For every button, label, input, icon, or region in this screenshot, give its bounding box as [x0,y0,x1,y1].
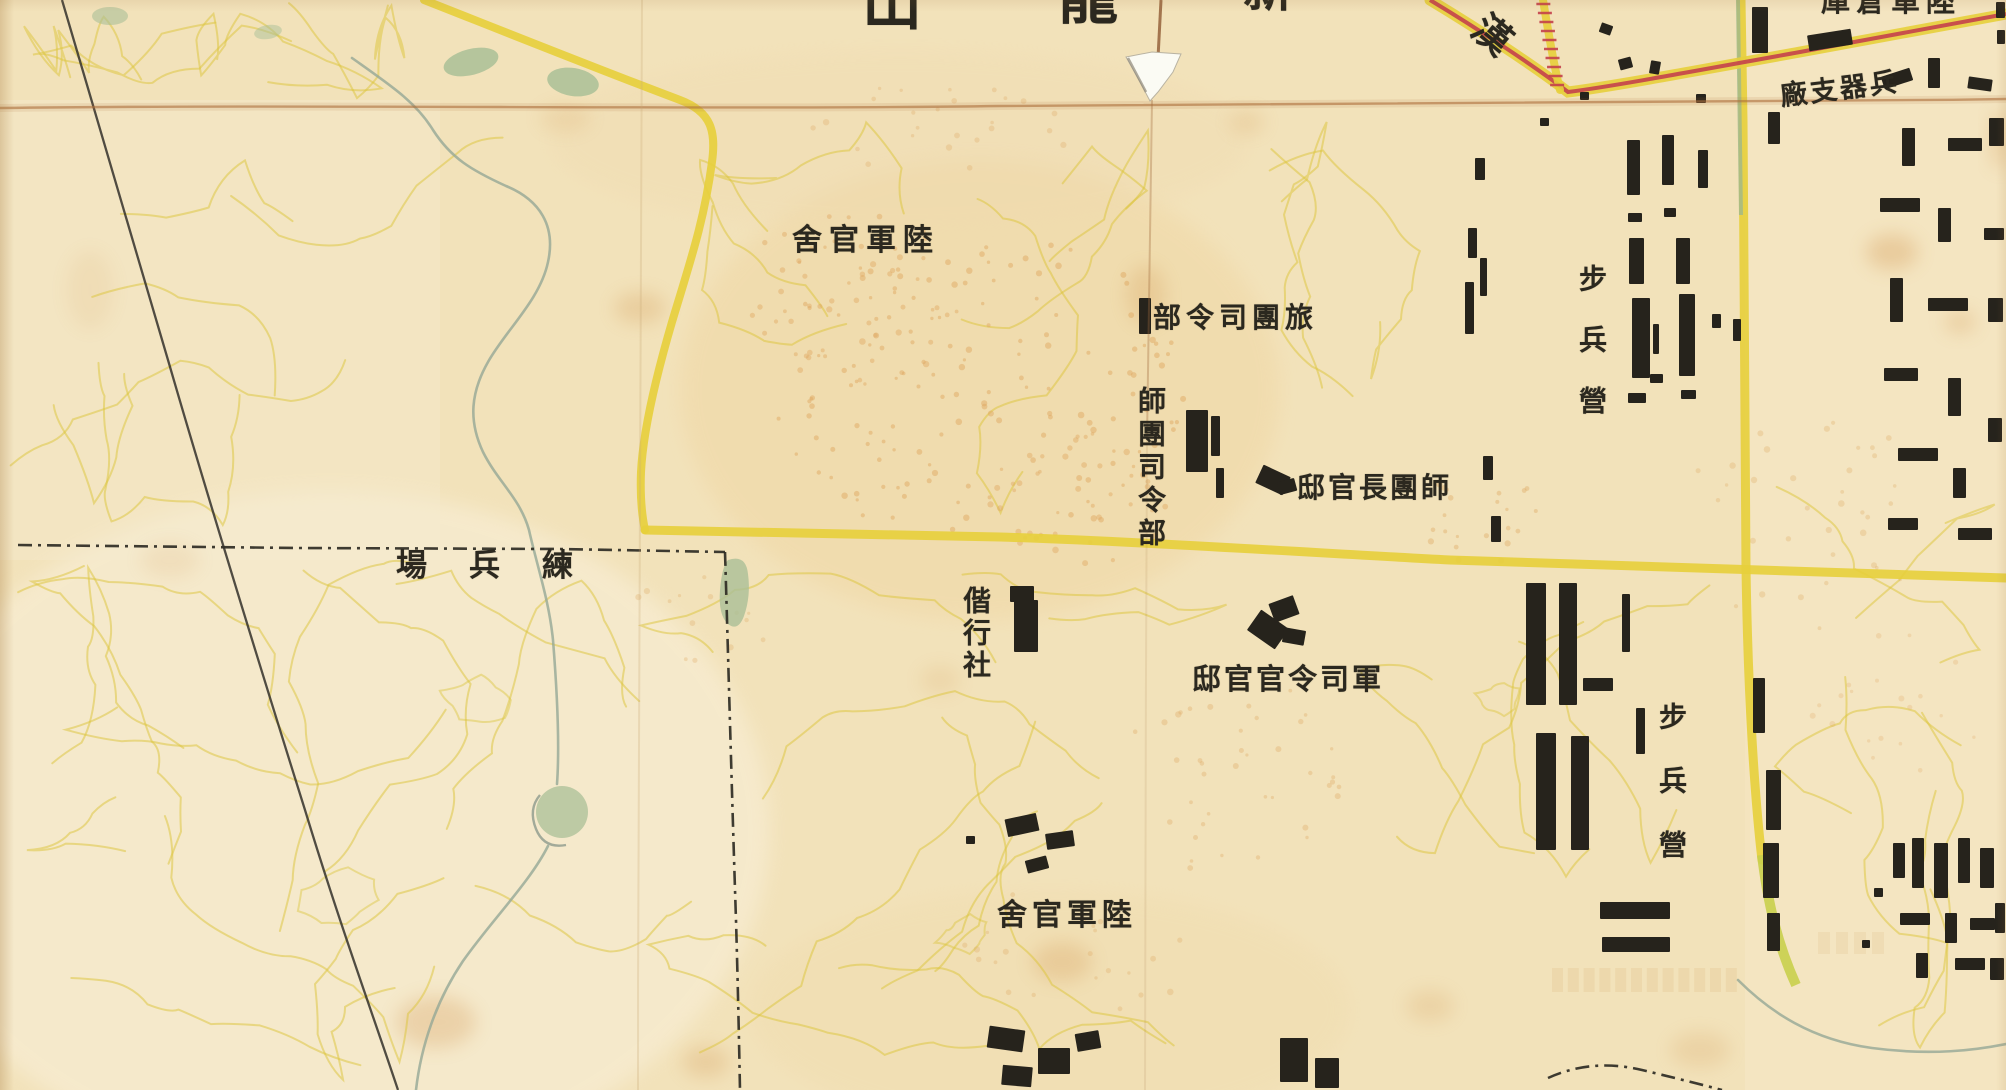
building [1475,158,1485,180]
label-infantry-barracks-north: 步兵營 [1577,264,1605,447]
building [1890,278,1903,322]
building [1653,324,1659,354]
label-army-officers-residence-north: 舍官軍陸 [792,226,940,256]
building [1955,958,1985,970]
building [1618,57,1633,71]
building [1980,848,1994,888]
building [1752,7,1768,53]
building [1632,298,1650,378]
building [1627,140,1640,195]
building [1559,583,1577,705]
building [1988,298,2003,322]
building [1010,586,1034,602]
building [1862,940,1870,948]
building [1953,468,1966,498]
building [1622,594,1630,652]
building [1681,390,1696,399]
building [1996,2,2005,18]
building [1945,913,1957,943]
building [1958,838,1970,883]
building [1491,516,1501,542]
pond [536,786,588,838]
building [1315,1058,1339,1088]
label-army-warehouse-partial: 庫倉軍陸 [1821,0,1961,16]
map-title-partial-yama: 山 [862,0,922,34]
building [1767,913,1780,951]
building [1753,678,1765,733]
building [1948,378,1961,416]
building [1583,678,1613,691]
building [1766,770,1781,830]
building [1216,468,1224,498]
building [1916,953,1928,978]
building [1898,448,1938,461]
building [1948,138,1982,151]
building [1958,528,1992,540]
building [1970,918,1995,930]
vertical-fold-crease-center [1158,0,1161,58]
building [1768,112,1780,144]
building [1928,298,1968,311]
building [1465,282,1474,334]
building [1938,208,1951,242]
label-infantry-barracks-south: 步兵營 [1657,702,1685,894]
building [1628,393,1646,403]
building [1988,418,2002,442]
building [1211,416,1220,456]
building [1280,1038,1308,1082]
building [1014,600,1038,652]
building [1602,937,1670,952]
building [1997,30,2005,44]
building [1038,1048,1070,1074]
building [1664,208,1676,217]
building [1733,319,1741,341]
building [1984,228,2004,240]
building [1526,583,1546,705]
building [1636,708,1645,754]
map-title-partial-ryu: 龍 [1058,0,1118,28]
building [1763,843,1779,898]
label-army-officers-residence-south: 舍官軍陸 [997,901,1137,931]
building [1025,855,1050,873]
building [1884,368,1918,381]
building [1629,238,1644,284]
building [1989,118,2004,146]
building [1902,128,1915,166]
building [1679,294,1695,376]
building [1712,314,1721,328]
building [1880,198,1920,212]
building [1888,518,1918,530]
label-parade-ground: 場兵練 [396,551,615,582]
building [1483,456,1493,480]
building [1480,258,1487,296]
building [1650,374,1663,383]
map-title-partial-shin: 新 [1243,0,1293,14]
building [1662,135,1674,185]
building [1934,843,1948,898]
building [1004,813,1039,837]
building [1995,903,2005,933]
label-kaikosha: 偕行社 [961,586,989,682]
building [1001,1065,1033,1088]
building [1599,22,1614,36]
building [1912,838,1924,888]
building [1571,736,1589,850]
building [1928,58,1940,88]
building [1536,733,1556,850]
label-division-commander-residence: 邸官長團師 [1297,474,1452,502]
building [1874,888,1883,897]
building [1600,902,1670,919]
vegetation-boundary-corner [720,559,749,627]
label-division-headquarters: 師團司令部 [1136,386,1164,551]
building [1990,958,2004,980]
building [1676,238,1690,284]
label-brigade-headquarters: 部令司團旅 [1153,304,1318,332]
building [1045,830,1075,850]
building [1698,150,1708,188]
building [1540,118,1549,126]
label-army-commander-residence: 邸官官令司軍 [1192,665,1384,694]
building [1893,843,1905,878]
building [1186,410,1208,472]
building [1900,913,1930,925]
map-canvas: 山 龍 新 漢 舍官軍陸 部令司團旅 師團司令部 邸官長團師 場兵練 偕行社 邸… [0,0,2006,1090]
building [1628,213,1642,222]
boundary-bottom-right [1548,1066,1722,1090]
building [1468,228,1477,258]
building [1282,627,1306,646]
building [966,836,975,844]
